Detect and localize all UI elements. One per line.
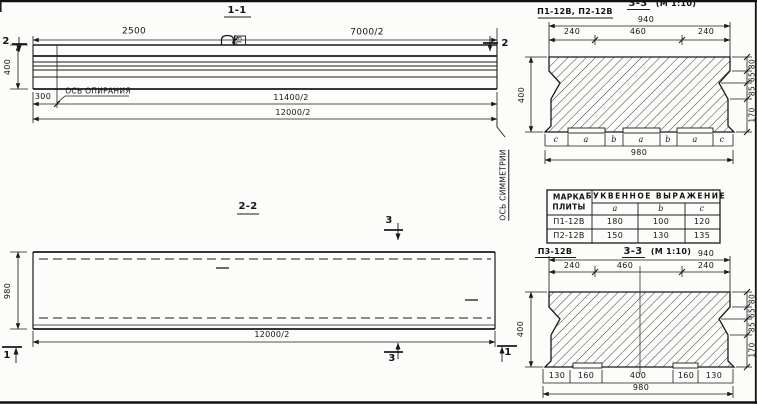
cut-marker-1-left: 1	[3, 351, 10, 361]
cs-bottom-dim-170: 170	[748, 342, 756, 357]
support-axis-label: ОСЬ ОПИРАНИЯ	[65, 87, 131, 95]
cs-top-dim-980: 980	[631, 149, 647, 157]
cs-bottom-dim-240-left: 240	[564, 262, 580, 270]
cs-bottom-scale: (М 1:10)	[651, 248, 691, 256]
dim-400-elevation: 400	[4, 59, 12, 75]
cut-marker-2-left: 2	[2, 37, 9, 47]
cs-bottom-dim-400b: 400	[630, 372, 646, 380]
dim-7000-2: 7000/2	[350, 29, 383, 38]
cs-top-letter-a2: a	[638, 136, 643, 144]
table-row1-mark: П1-12В	[553, 218, 584, 226]
drawing-linework	[0, 0, 757, 404]
dim-980-plan: 980	[4, 283, 12, 299]
cs-top-letter-b2: b	[665, 136, 670, 144]
cs-top-letter-c2: c	[720, 136, 725, 144]
cs-bottom-dim-160-2: 160	[678, 372, 694, 380]
dim-12000-2-plan: 12000/2	[254, 331, 289, 339]
cs-top-title: 3-3	[629, 0, 648, 9]
table-subheader-b: b	[658, 205, 663, 213]
dim-11400-2: 11400/2	[273, 94, 308, 102]
cs-top-dim-460: 460	[630, 28, 646, 36]
cut-marker-1-right: 1	[504, 348, 511, 358]
cs-top-dim-80: 80	[748, 59, 756, 69]
cut-marker-3-bottom: 3	[388, 354, 395, 364]
cs-top-dim-85: 85	[748, 86, 756, 96]
cs-top-dim-940: 940	[638, 16, 654, 24]
dim-300: 300	[35, 93, 51, 101]
cs-top-letter-c1: c	[554, 136, 559, 144]
lifting-loop-tag: ПЗ	[237, 35, 244, 45]
table-row2-a: 150	[607, 232, 623, 240]
cs-bottom-dim-400: 400	[517, 321, 525, 337]
cs-top-dim-65: 65	[748, 72, 756, 82]
table-row1-c: 120	[694, 218, 710, 226]
table-row2-b: 130	[653, 232, 669, 240]
cut-marker-2-right: 2	[501, 39, 508, 49]
cs-bottom-mark-label: П3-12В	[538, 248, 573, 256]
cs-top-mark-label: П1-12В, П2-12В	[537, 8, 613, 16]
symmetry-axis-leader	[497, 121, 505, 137]
dim-12000-2-elevation: 12000/2	[275, 109, 310, 117]
table-row1-a: 180	[607, 218, 623, 226]
cs-top-scale: (М 1:10)	[656, 0, 696, 8]
table-header-expression: БУКВЕННОЕ ВЫРАЖЕНИЕ	[586, 192, 726, 200]
table-header-marka: МАРКА	[553, 193, 585, 201]
dim-2500: 2500	[122, 28, 146, 37]
cs-top-dim-240-left: 240	[564, 28, 580, 36]
section-1-1-title: 1-1	[228, 6, 247, 16]
cs-bottom-dim-980: 980	[633, 384, 649, 392]
table-row2-c: 135	[694, 232, 710, 240]
cs-bottom-dim-460: 460	[617, 262, 633, 270]
cs-bottom-dim-940: 940	[698, 250, 714, 258]
table-row1-b: 100	[653, 218, 669, 226]
cs-bottom-dim-65: 65	[748, 308, 756, 318]
cs-bottom-dim-240-right: 240	[698, 262, 714, 270]
cs-bottom-dim-160-1: 160	[578, 372, 594, 380]
cs-top-dim-240-right: 240	[698, 28, 714, 36]
cs-top-dim-400: 400	[518, 87, 526, 103]
cut-marker-3-top: 3	[385, 216, 392, 226]
table-row2-mark: П2-12В	[553, 232, 584, 240]
table-subheader-c: c	[700, 205, 705, 213]
cs-bottom-title: 3-3	[624, 247, 643, 257]
section-2-2-linework	[2, 214, 517, 363]
cs-bottom-dim-130-2: 130	[706, 372, 722, 380]
table-header-plity: ПЛИТЫ	[552, 203, 585, 211]
engineering-drawing-sheet: 1-1 2500 7000/2 2 2 400 300 ОСЬ ОПИРАНИЯ…	[0, 0, 757, 404]
cs-bottom-dim-85: 85	[748, 322, 756, 332]
table-subheader-a: a	[612, 205, 617, 213]
cs-top-dim-170: 170	[748, 107, 756, 122]
symmetry-axis-label: ОСЬ СИММЕТРИИ	[499, 149, 509, 220]
cs-top-letter-b1: b	[611, 136, 616, 144]
section-2-2-title: 2-2	[239, 202, 258, 212]
cs-top-letter-a3: a	[692, 136, 697, 144]
section-1-1-linework	[10, 17, 498, 123]
cs-top-letter-a1: a	[583, 136, 588, 144]
cs-bottom-dim-80: 80	[748, 294, 756, 304]
cs-bottom-dim-130-1: 130	[549, 372, 565, 380]
